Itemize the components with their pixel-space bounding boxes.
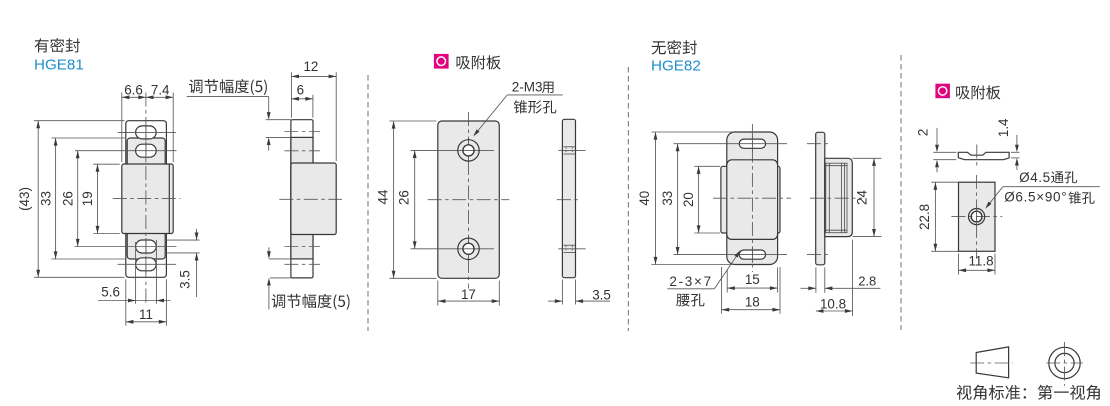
svg-text:6: 6	[297, 83, 304, 98]
svg-text:18: 18	[745, 294, 760, 309]
svg-text:11.8: 11.8	[968, 254, 993, 269]
svg-text:HGE81: HGE81	[34, 57, 84, 74]
svg-text:22.8: 22.8	[917, 204, 932, 230]
svg-text:2: 2	[915, 129, 930, 136]
svg-text:6.6: 6.6	[124, 83, 143, 98]
svg-text:33: 33	[660, 191, 675, 206]
svg-text:11: 11	[139, 307, 153, 322]
svg-text:10.8: 10.8	[820, 296, 846, 311]
svg-text:26: 26	[60, 191, 75, 206]
svg-text:1.4: 1.4	[996, 118, 1011, 137]
svg-text:40: 40	[637, 191, 652, 206]
svg-text:24: 24	[855, 190, 870, 205]
svg-text:20: 20	[681, 192, 696, 207]
svg-text:Ø6.5×90°: Ø6.5×90°	[1004, 190, 1067, 205]
svg-text:(43): (43)	[17, 187, 32, 211]
svg-text:26: 26	[396, 190, 411, 205]
svg-text:15: 15	[745, 272, 760, 287]
svg-text:19: 19	[80, 191, 95, 206]
svg-text:5.6: 5.6	[101, 285, 120, 300]
svg-text:2-M3: 2-M3	[512, 79, 543, 94]
svg-text:44: 44	[375, 189, 390, 204]
svg-text:Ø4.5: Ø4.5	[1019, 170, 1051, 185]
svg-text:17: 17	[461, 287, 476, 302]
svg-text:7.4: 7.4	[151, 83, 170, 98]
svg-text:2.8: 2.8	[858, 273, 876, 288]
svg-text:HGE82: HGE82	[651, 58, 701, 75]
svg-text:12: 12	[303, 59, 318, 74]
svg-text:2-3×7: 2-3×7	[669, 274, 712, 289]
svg-text:3.5: 3.5	[592, 288, 611, 303]
svg-text:33: 33	[38, 191, 53, 206]
svg-text:3.5: 3.5	[177, 270, 192, 289]
